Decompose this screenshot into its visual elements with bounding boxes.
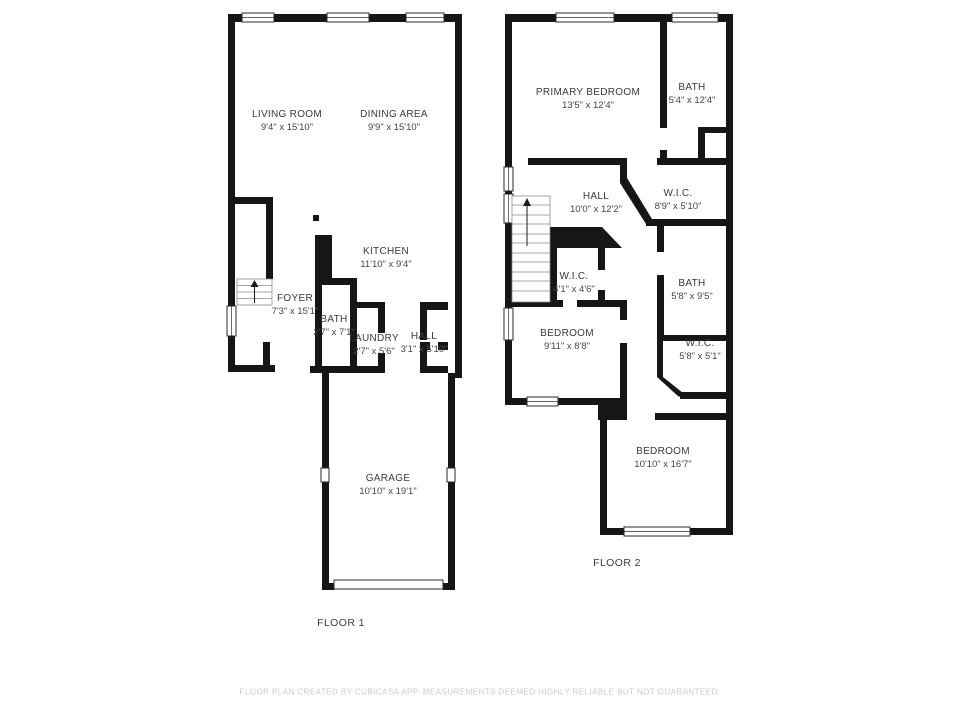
window-mullions: [232, 18, 719, 532]
staircase-floor1: [237, 279, 272, 305]
floorplan-walls: [0, 0, 960, 720]
floor1-caption: FLOOR 1: [317, 617, 365, 629]
floorplan-canvas: LIVING ROOM 9'4" x 15'10" DINING AREA 9'…: [0, 0, 960, 720]
disclaimer-text: FLOOR PLAN CREATED BY CUBICASA APP. MEAS…: [240, 688, 721, 697]
floor2-caption: FLOOR 2: [593, 557, 641, 569]
staircase-floor2: [512, 196, 550, 302]
window-glyphs: [227, 13, 718, 589]
